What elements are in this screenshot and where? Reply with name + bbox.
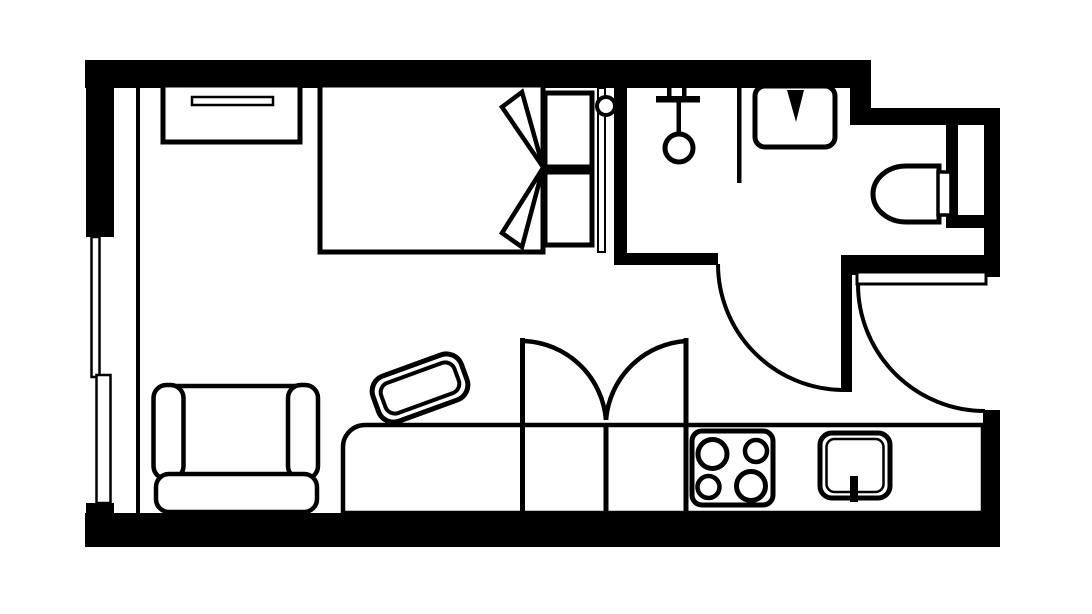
- wall-right-kitchen: [983, 410, 1000, 547]
- interior-wall-line-left: [136, 88, 140, 513]
- pillow-lower: [545, 172, 592, 245]
- floor-plan-svg: [0, 0, 1092, 614]
- wall-bedroom-bathroom-divider: [614, 88, 627, 265]
- wall-right-bathroom: [984, 108, 1000, 277]
- armchair-seat: [168, 386, 302, 478]
- window-left-lower-pane: [97, 375, 111, 503]
- dresser-handle: [192, 97, 273, 105]
- burner-small-bottom-left: [698, 476, 720, 498]
- armchair-back: [156, 474, 317, 512]
- pillow-upper: [545, 93, 592, 167]
- wardrobe-divider-mid: [604, 427, 609, 513]
- kitchen-faucet: [850, 476, 858, 502]
- burner-small-top-right: [745, 440, 767, 462]
- burner-large-bottom-right: [737, 472, 766, 501]
- wall-bottom: [85, 513, 1000, 547]
- armchair-arm-left: [154, 385, 184, 479]
- shower-head: [665, 134, 693, 162]
- wall-bathroom-top: [864, 108, 1000, 125]
- shower-arm-bar: [656, 96, 700, 103]
- window-right-mullion: [946, 215, 985, 228]
- burner-large-top-left: [698, 440, 727, 469]
- wardrobe-jamb-left: [520, 338, 525, 513]
- shower-hose: [677, 102, 682, 135]
- wardrobe-jamb-right: [684, 338, 689, 513]
- armchair-arm-right: [288, 385, 318, 479]
- toilet-tank: [938, 172, 951, 215]
- bed-knob: [597, 97, 615, 115]
- bathroom-door-leaf: [841, 255, 852, 392]
- shower-partition-line: [737, 88, 742, 183]
- entry-door-leaf: [857, 272, 986, 284]
- window-left-upper-pane: [92, 237, 100, 377]
- floor-plan: [0, 0, 1092, 614]
- wall-bathroom-south-left: [614, 253, 718, 265]
- dresser: [163, 85, 300, 142]
- toilet-bowl: [873, 166, 939, 222]
- wall-left-upper: [86, 60, 114, 237]
